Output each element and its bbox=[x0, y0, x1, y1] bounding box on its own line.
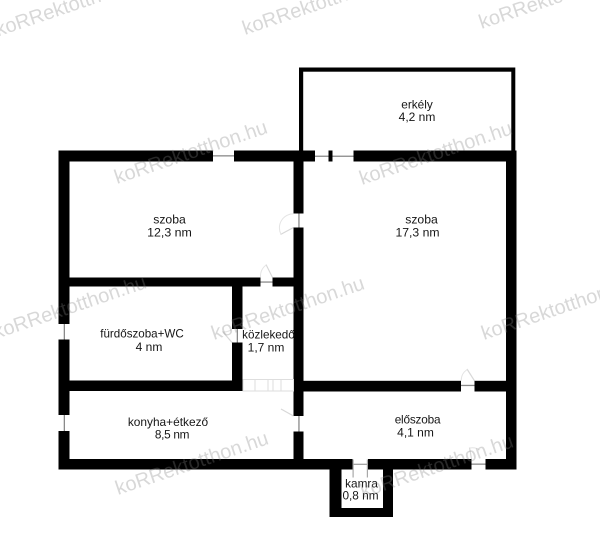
svg-text:17,3 nm: 17,3 nm bbox=[395, 226, 439, 240]
svg-text:12,3 nm: 12,3 nm bbox=[147, 226, 192, 240]
svg-text:fürdőszoba+WC: fürdőszoba+WC bbox=[100, 328, 183, 341]
svg-text:4,2 nm: 4,2 nm bbox=[399, 110, 436, 124]
svg-text:4 nm: 4 nm bbox=[136, 340, 163, 354]
svg-text:szoba: szoba bbox=[405, 213, 438, 227]
svg-text:8,5 nm: 8,5 nm bbox=[155, 427, 190, 441]
svg-text:szoba: szoba bbox=[153, 213, 186, 227]
svg-text:előszoba: előszoba bbox=[395, 412, 441, 426]
svg-text:4,1 nm: 4,1 nm bbox=[397, 425, 434, 439]
svg-text:1,7 nm: 1,7 nm bbox=[248, 340, 285, 354]
